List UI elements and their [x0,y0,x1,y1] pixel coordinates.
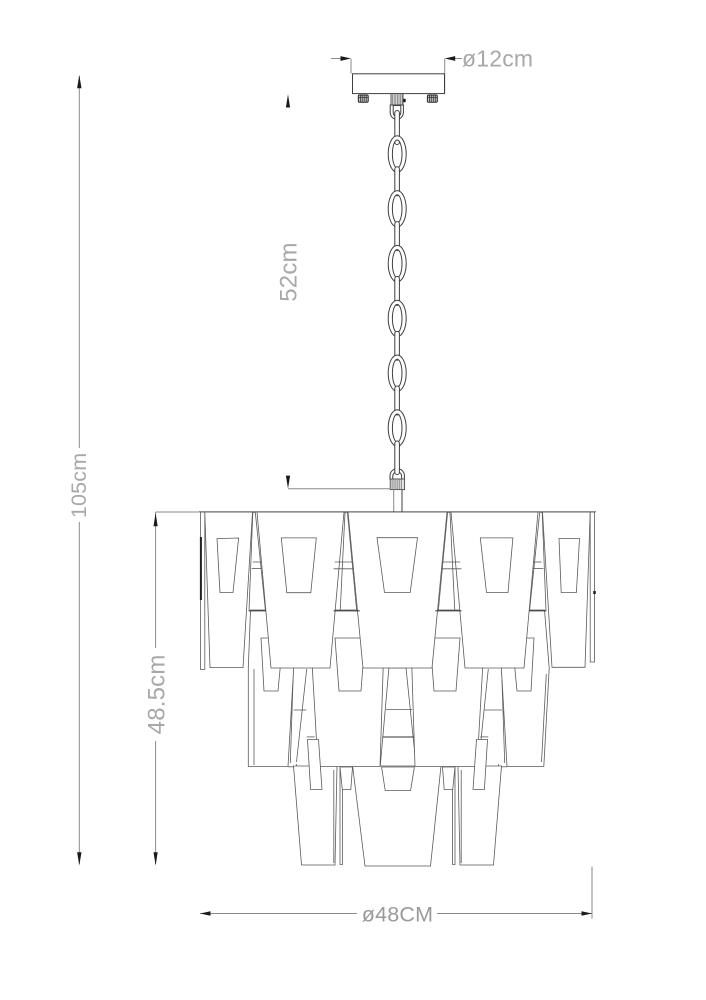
svg-text:ø48CM: ø48CM [362,903,433,927]
svg-text:ø12cm: ø12cm [462,46,533,72]
svg-text:52cm: 52cm [276,242,303,302]
svg-text:105cm: 105cm [67,453,91,519]
svg-text:48.5cm: 48.5cm [144,654,171,734]
